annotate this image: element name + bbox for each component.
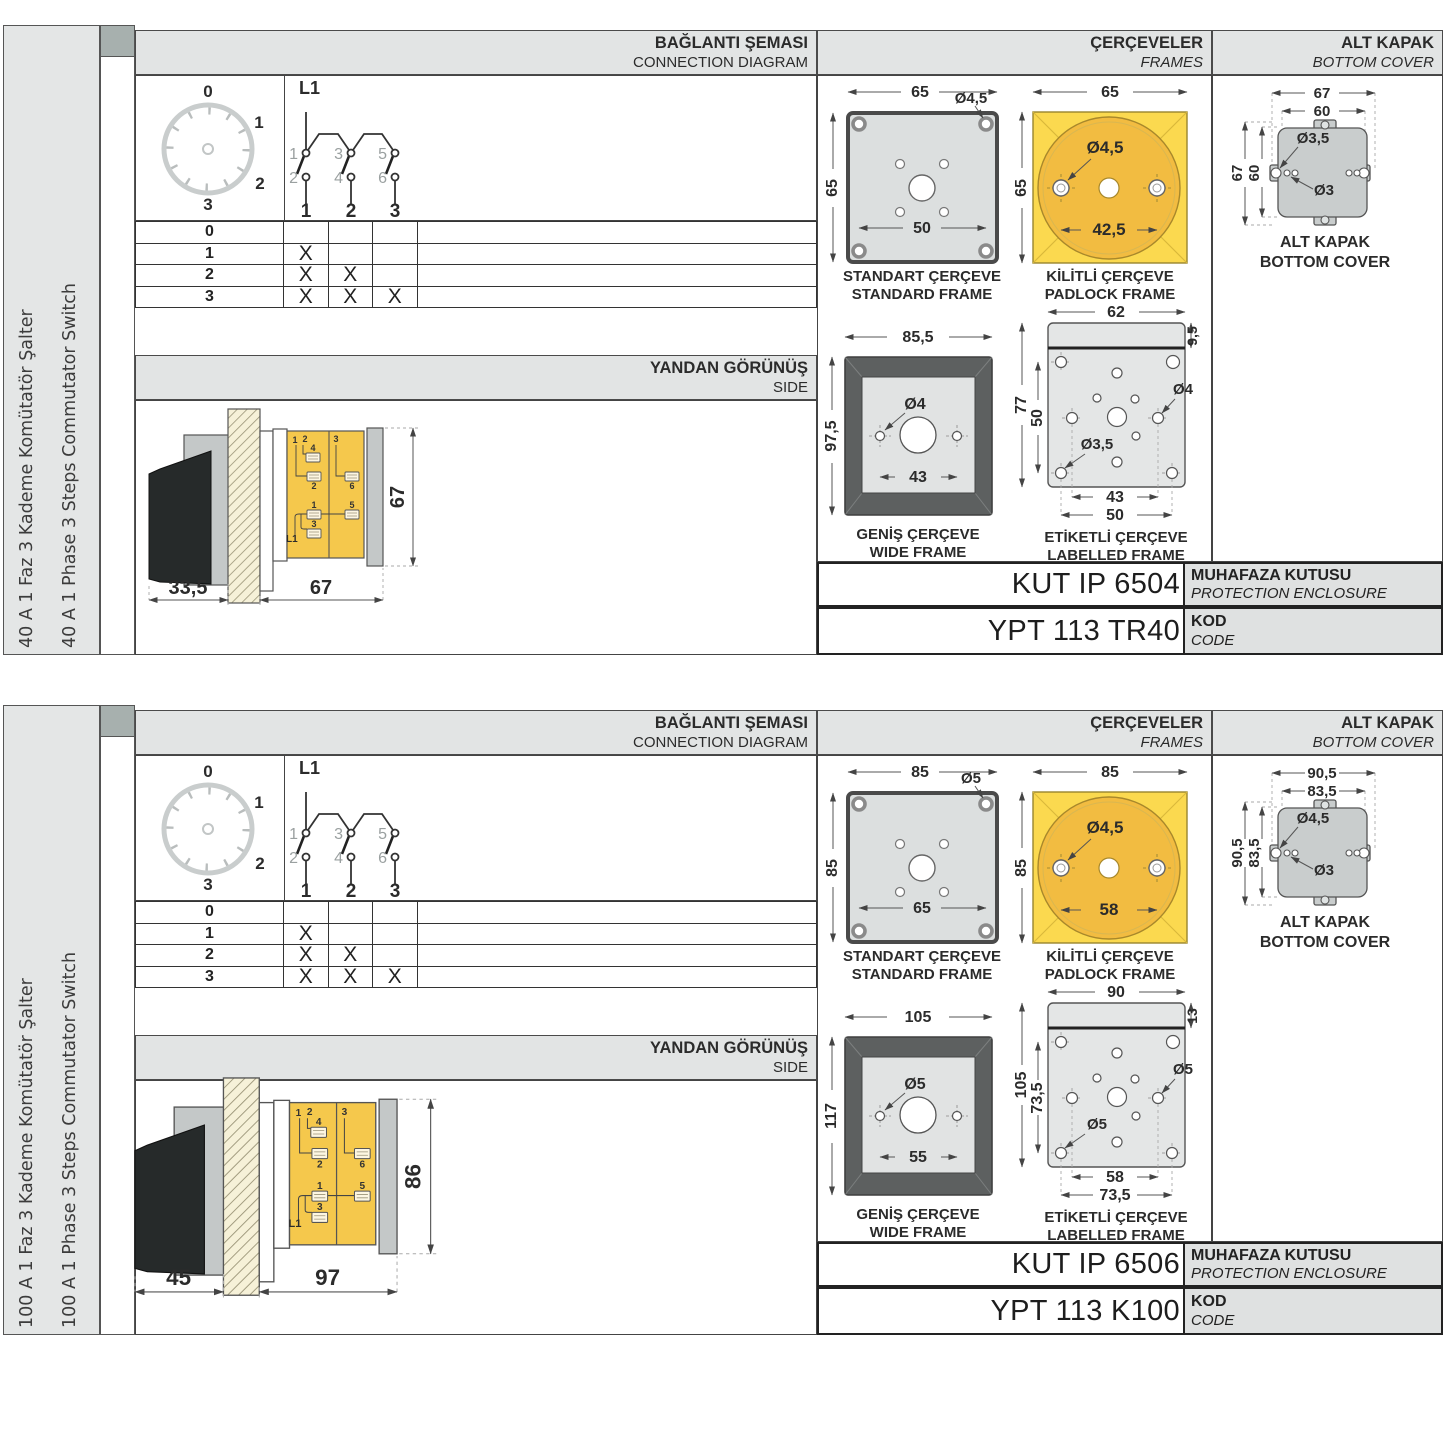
product-panel: 100 A 1 Faz 3 Kademe Komütatör Şalter 10… (0, 705, 1445, 1337)
mark-cell (329, 902, 374, 923)
mark-cell: X (284, 244, 329, 265)
enclosure-row: KUT IP 6504 MUHAFAZA KUTUSU PROTECTION E… (817, 562, 1443, 607)
mark-cell: X (284, 924, 329, 945)
table-row: 2 X X (135, 264, 817, 287)
wide-height-dim: 117 (823, 1103, 840, 1129)
header-connection-diagram: BAĞLANTI ŞEMASI CONNECTION DIAGRAM (135, 710, 817, 755)
sv-term-1b: 1 (311, 500, 316, 510)
cover-h1-dim: 90,5 (1229, 838, 1246, 867)
row-label: 1 (136, 244, 284, 265)
corner-marker (100, 705, 135, 737)
product-title-en: 100 A 1 Phase 3 Steps Commutator Switch (60, 952, 80, 1328)
terminal-1: 1 (289, 826, 298, 843)
enclosure-row: KUT IP 6506 MUHAFAZA KUTUSU PROTECTION E… (817, 1242, 1443, 1287)
table-row: 1 X (135, 243, 817, 266)
code-row: YPT 113 K100 KOD CODE (817, 1287, 1443, 1335)
mark-cell (329, 924, 374, 945)
circuit-diagram: L1 1 2 3 4 5 6 1 2 3 (285, 756, 816, 900)
mark-cell: X (373, 967, 418, 988)
enclosure-label-en: PROTECTION ENCLOSURE (1191, 1265, 1435, 1283)
empty-cell (418, 222, 817, 243)
code-label-en: CODE (1191, 632, 1435, 650)
product-title-en: 40 A 1 Phase 3 Steps Commutator Switch (60, 283, 80, 648)
std-pitch-dim: 65 (913, 900, 931, 917)
sv-height-dim: 86 (401, 1164, 426, 1189)
wide-caption-tr: GENİŞ ÇERÇEVE (856, 1206, 979, 1223)
wide-width-dim: 85,5 (902, 329, 933, 346)
header-connection-en: CONNECTION DIAGRAM (633, 54, 808, 72)
table-row: 0 (135, 901, 817, 924)
connection-diagram-box: 0 1 2 3 L1 (135, 755, 817, 901)
row-label: 0 (136, 902, 284, 923)
side-view-box: 1 2 4 2 3 6 1 5 3 L1 67 33,5 67 (135, 400, 817, 655)
lab-hole-big-dim: Ø4 (1173, 381, 1194, 398)
cover-h1-dim: 67 (1229, 165, 1246, 182)
header-cover-tr: ALT KAPAK (1341, 33, 1434, 54)
wide-width-dim: 105 (905, 1009, 932, 1026)
header-cover-en: BOTTOM COVER (1313, 54, 1434, 72)
cover-hole-small-dim: Ø3 (1314, 862, 1334, 879)
cover-w1-dim: 67 (1314, 85, 1331, 102)
lab-height-dim: 77 (1013, 396, 1030, 414)
empty-cell (418, 244, 817, 265)
wide-hole-dim: Ø5 (904, 1076, 925, 1093)
mark-cell (373, 244, 418, 265)
circuit-cell: L1 1 2 3 4 5 6 1 2 3 (285, 76, 816, 220)
header-frames-tr: ÇERÇEVELER (1090, 33, 1203, 54)
mark-cell: X (329, 967, 374, 988)
dial-pos-3: 3 (203, 875, 212, 894)
pad-pitch-dim: 58 (1100, 900, 1119, 919)
pad-caption-tr: KİLİTLİ ÇERÇEVE (1046, 268, 1174, 285)
terminal-4: 4 (334, 170, 343, 187)
cover-caption-en: BOTTOM COVER (1260, 254, 1391, 271)
spacer-column (100, 25, 135, 655)
lab-caption-tr: ETİKETLİ ÇERÇEVE (1044, 529, 1187, 546)
mark-cell: X (329, 287, 374, 308)
sv-term-1: 1 (292, 435, 297, 445)
sv-term-2b: 2 (311, 481, 316, 491)
sv-term-3b: 3 (317, 1202, 323, 1213)
pad-height-dim: 85 (1013, 859, 1030, 877)
cover-caption-tr: ALT KAPAK (1280, 234, 1371, 251)
terminal-1: 1 (289, 146, 298, 163)
pad-pitch-dim: 42,5 (1092, 220, 1125, 239)
sv-body-depth-dim: 97 (315, 1265, 340, 1290)
table-row: 3 X X X (135, 966, 817, 989)
terminal-5: 5 (378, 826, 387, 843)
standard-frame-drawing: 65 Ø4,5 65 50 STANDART ÇERÇEVE STANDARD … (825, 83, 1015, 333)
cover-h2-dim: 60 (1246, 165, 1263, 182)
lab-pitchv-dim: 50 (1029, 409, 1046, 427)
enclosure-label-en: PROTECTION ENCLOSURE (1191, 585, 1435, 603)
sv-term-4: 4 (310, 443, 315, 453)
pad-hole-dim: Ø4,5 (1087, 138, 1124, 157)
mark-cell (329, 222, 374, 243)
terminal-2: 2 (289, 170, 298, 187)
header-side-view: YANDAN GÖRÜNÜŞ SIDE (135, 355, 817, 400)
lab-pitchh1-dim: 58 (1106, 1169, 1124, 1186)
product-panel: 40 A 1 Faz 3 Kademe Komütatör Şalter 40 … (0, 25, 1445, 657)
mark-cell: X (329, 265, 374, 286)
corner-marker (100, 25, 135, 57)
product-code-value: YPT 113 K100 (817, 1287, 1185, 1335)
std-hole-dim: Ø5 (961, 770, 981, 787)
sv-term-4: 4 (316, 1117, 322, 1128)
sv-term-6: 6 (360, 1160, 366, 1171)
side-view-en: SIDE (773, 1059, 808, 1077)
pole-2: 2 (346, 881, 357, 902)
side-view-drawing: 1 2 4 2 3 6 1 5 3 L1 86 45 97 (136, 1081, 816, 1334)
code-label: KOD CODE (1185, 1287, 1443, 1335)
terminal-6: 6 (378, 170, 387, 187)
enclosure-label: MUHAFAZA KUTUSU PROTECTION ENCLOSURE (1185, 1242, 1443, 1287)
wide-caption-en: WIDE FRAME (870, 1224, 967, 1241)
cover-w2-dim: 60 (1314, 103, 1331, 120)
bottom-cover-drawing: 67 60 67 60 Ø3,5 Ø3 ALT KAPAK BOTTOM CO (1225, 85, 1435, 285)
pole-1: 1 (301, 881, 312, 902)
lab-pitchv-dim: 73,5 (1029, 1082, 1046, 1113)
sv-term-5: 5 (360, 1181, 366, 1192)
sv-front-depth-dim: 45 (166, 1265, 191, 1290)
enclosure-code-value: KUT IP 6506 (817, 1242, 1185, 1287)
header-cover-en: BOTTOM COVER (1313, 734, 1434, 752)
mark-cell (329, 244, 374, 265)
sv-term-1: 1 (296, 1108, 302, 1119)
cover-w2-dim: 83,5 (1307, 783, 1336, 800)
lab-hole-big-dim: Ø5 (1173, 1061, 1193, 1078)
std-caption-tr: STANDART ÇERÇEVE (843, 948, 1001, 965)
feed-label: L1 (299, 78, 320, 98)
header-connection-tr: BAĞLANTI ŞEMASI (655, 713, 808, 734)
mark-cell (284, 222, 329, 243)
empty-cell (418, 924, 817, 945)
mark-cell: X (284, 967, 329, 988)
cover-w1-dim: 90,5 (1307, 765, 1336, 782)
switching-truth-table: 0 1 X 2 X X 3 X X X (135, 221, 817, 308)
std-height-dim: 85 (824, 859, 841, 877)
labelled-frame-drawing: Ø4 Ø3,5 62 9,5 77 50 43 50 ETİKETLİ ÇERÇ… (1015, 300, 1200, 590)
wide-caption-tr: GENİŞ ÇERÇEVE (856, 526, 979, 543)
mark-cell: X (284, 265, 329, 286)
cover-hole-big-dim: Ø3,5 (1297, 130, 1330, 147)
sv-feed-label: L1 (286, 534, 298, 545)
connection-diagram-box: 0 1 2 3 L1 (135, 75, 817, 221)
terminal-3: 3 (334, 146, 343, 163)
sv-front-depth-dim: 33,5 (169, 577, 208, 599)
std-height-dim: 65 (824, 179, 841, 197)
side-view-tr: YANDAN GÖRÜNÜŞ (650, 1038, 808, 1059)
code-row: YPT 113 TR40 KOD CODE (817, 607, 1443, 655)
bottom-cover-drawing: 90,5 83,5 90,5 83,5 Ø4,5 Ø3 ALT KAPAK B (1225, 765, 1435, 965)
mark-cell (373, 265, 418, 286)
lab-pitchh2-dim: 73,5 (1099, 1187, 1130, 1204)
header-cover-tr: ALT KAPAK (1341, 713, 1434, 734)
lab-hole-small-dim: Ø3,5 (1081, 436, 1114, 453)
code-label-en: CODE (1191, 1312, 1435, 1330)
header-frames-en: FRAMES (1140, 54, 1203, 72)
mark-cell: X (284, 287, 329, 308)
header-side-view: YANDAN GÖRÜNÜŞ SIDE (135, 1035, 817, 1080)
dial-cell: 0 1 2 3 (136, 756, 285, 900)
side-view-drawing: 1 2 4 2 3 6 1 5 3 L1 67 33,5 67 (136, 401, 816, 654)
product-title-tr: 100 A 1 Faz 3 Kademe Komütatör Şalter (17, 978, 37, 1328)
terminal-4: 4 (334, 850, 343, 867)
std-pitch-dim: 50 (913, 220, 931, 237)
mark-cell (373, 924, 418, 945)
header-frames-en: FRAMES (1140, 734, 1203, 752)
mark-cell (284, 902, 329, 923)
header-frames: ÇERÇEVELER FRAMES (817, 710, 1212, 755)
wide-frame-drawing: Ø4 43 85,5 97,5 GENİŞ ÇERÇEVE WIDE FRAME (825, 325, 1015, 585)
std-width-dim: 65 (911, 84, 929, 101)
std-caption-en: STANDARD FRAME (852, 286, 993, 303)
empty-cell (418, 945, 817, 966)
dial-pos-1: 1 (254, 793, 263, 812)
terminal-3: 3 (334, 826, 343, 843)
cover-hole-big-dim: Ø4,5 (1297, 810, 1330, 827)
pole-3: 3 (390, 881, 401, 902)
header-connection-diagram: BAĞLANTI ŞEMASI CONNECTION DIAGRAM (135, 30, 817, 75)
mark-cell: X (284, 945, 329, 966)
sv-term-2: 2 (302, 434, 307, 444)
header-connection-en: CONNECTION DIAGRAM (633, 734, 808, 752)
mark-cell: X (373, 287, 418, 308)
code-label-tr: KOD (1191, 612, 1435, 631)
sv-term-3: 3 (333, 434, 338, 444)
table-row: 2 X X (135, 944, 817, 967)
wide-frame-drawing: Ø5 55 105 117 GENİŞ ÇERÇEVE WIDE FRAME (825, 1005, 1015, 1265)
sidebar: 40 A 1 Faz 3 Kademe Komütatör Şalter 40 … (3, 25, 100, 655)
row-label: 0 (136, 222, 284, 243)
cover-h2-dim: 83,5 (1246, 838, 1263, 867)
lab-width-dim: 90 (1107, 984, 1125, 1001)
lab-pitchh1-dim: 43 (1106, 489, 1124, 506)
header-connection-tr: BAĞLANTI ŞEMASI (655, 33, 808, 54)
empty-cell (418, 287, 817, 308)
dial-pos-1: 1 (254, 113, 263, 132)
sv-term-3: 3 (342, 1107, 348, 1118)
lab-height-dim: 105 (1013, 1072, 1030, 1099)
dial-pos-3: 3 (203, 195, 212, 214)
lab-hole-small-dim: Ø5 (1087, 1116, 1107, 1133)
header-frames: ÇERÇEVELER FRAMES (817, 30, 1212, 75)
terminal-2: 2 (289, 850, 298, 867)
mark-cell (373, 902, 418, 923)
lab-strip-dim: 9,5 (1184, 326, 1200, 346)
table-row: 0 (135, 221, 817, 244)
code-label: KOD CODE (1185, 607, 1443, 655)
wide-hole-dim: Ø4 (904, 396, 925, 413)
row-label: 3 (136, 287, 284, 308)
dial-pos-0: 0 (203, 762, 212, 781)
pad-caption-tr: KİLİTLİ ÇERÇEVE (1046, 948, 1174, 965)
std-caption-tr: STANDART ÇERÇEVE (843, 268, 1001, 285)
std-width-dim: 85 (911, 764, 929, 781)
lab-strip-dim: 13 (1184, 1008, 1200, 1024)
empty-cell (418, 902, 817, 923)
header-bottom-cover: ALT KAPAK BOTTOM COVER (1212, 710, 1443, 755)
pad-width-dim: 85 (1101, 764, 1119, 781)
sv-term-1b: 1 (317, 1181, 323, 1192)
side-view-en: SIDE (773, 379, 808, 397)
sv-term-3b: 3 (311, 519, 316, 529)
table-row: 3 X X X (135, 286, 817, 309)
sidebar: 100 A 1 Faz 3 Kademe Komütatör Şalter 10… (3, 705, 100, 1335)
pad-width-dim: 65 (1101, 84, 1119, 101)
standard-frame-drawing: 85 Ø5 85 65 STANDART ÇERÇEVE STANDARD FR… (825, 763, 1015, 1013)
switch-dial-drawing: 0 1 2 3 (136, 76, 285, 220)
sv-term-6: 6 (349, 481, 354, 491)
header-bottom-cover: ALT KAPAK BOTTOM COVER (1212, 30, 1443, 75)
feed-label: L1 (299, 758, 320, 778)
row-label: 2 (136, 265, 284, 286)
wide-pitch-dim: 55 (909, 1149, 927, 1166)
lab-width-dim: 62 (1107, 304, 1125, 321)
pad-height-dim: 65 (1013, 179, 1030, 197)
terminal-6: 6 (378, 850, 387, 867)
product-code-value: YPT 113 TR40 (817, 607, 1185, 655)
side-view-tr: YANDAN GÖRÜNÜŞ (650, 358, 808, 379)
code-label-tr: KOD (1191, 1292, 1435, 1311)
dial-cell: 0 1 2 3 (136, 76, 285, 220)
switch-dial-drawing: 0 1 2 3 (136, 756, 285, 900)
empty-cell (418, 265, 817, 286)
pad-hole-dim: Ø4,5 (1087, 818, 1124, 837)
side-view-box: 1 2 4 2 3 6 1 5 3 L1 86 45 97 (135, 1080, 817, 1335)
header-frames-tr: ÇERÇEVELER (1090, 713, 1203, 734)
enclosure-label: MUHAFAZA KUTUSU PROTECTION ENCLOSURE (1185, 562, 1443, 607)
empty-cell (418, 967, 817, 988)
sv-term-5: 5 (349, 500, 354, 510)
std-hole-dim: Ø4,5 (955, 90, 988, 107)
sv-term-2b: 2 (317, 1160, 323, 1171)
cover-caption-tr: ALT KAPAK (1280, 914, 1371, 931)
circuit-diagram: L1 1 2 3 4 5 6 1 2 3 (285, 76, 816, 220)
wide-pitch-dim: 43 (909, 469, 927, 486)
labelled-frame-drawing: Ø5 Ø5 90 13 105 73,5 58 73,5 ETİKETLİ ÇE… (1015, 980, 1200, 1270)
mark-cell: X (329, 945, 374, 966)
mark-cell (373, 222, 418, 243)
row-label: 1 (136, 924, 284, 945)
sv-feed-label: L1 (288, 1218, 301, 1230)
circuit-cell: L1 1 2 3 4 5 6 1 2 3 (285, 756, 816, 900)
enclosure-label-tr: MUHAFAZA KUTUSU (1191, 1246, 1435, 1265)
cover-caption-en: BOTTOM COVER (1260, 934, 1391, 951)
wide-caption-en: WIDE FRAME (870, 544, 967, 561)
row-label: 3 (136, 967, 284, 988)
lab-pitchh2-dim: 50 (1106, 507, 1124, 524)
sv-term-2: 2 (307, 1107, 313, 1118)
wide-height-dim: 97,5 (823, 420, 840, 451)
pole-3: 3 (390, 201, 401, 222)
switching-truth-table: 0 1 X 2 X X 3 X X X (135, 901, 817, 988)
padlock-frame-drawing: Ø4,5 42,5 65 65 KİLİTLİ ÇERÇEVE PADLOCK … (1015, 83, 1200, 333)
product-title-tr: 40 A 1 Faz 3 Kademe Komütatör Şalter (17, 309, 37, 648)
dial-pos-0: 0 (203, 82, 212, 101)
mark-cell (373, 945, 418, 966)
enclosure-code-value: KUT IP 6504 (817, 562, 1185, 607)
lab-caption-tr: ETİKETLİ ÇERÇEVE (1044, 1209, 1187, 1226)
padlock-frame-drawing: Ø4,5 58 85 85 KİLİTLİ ÇERÇEVE PADLOCK FR… (1015, 763, 1200, 1013)
sv-height-dim: 67 (387, 486, 409, 508)
enclosure-label-tr: MUHAFAZA KUTUSU (1191, 566, 1435, 585)
cover-hole-small-dim: Ø3 (1314, 182, 1334, 199)
dial-pos-2: 2 (255, 174, 264, 193)
terminal-5: 5 (378, 146, 387, 163)
pole-2: 2 (346, 201, 357, 222)
row-label: 2 (136, 945, 284, 966)
table-row: 1 X (135, 923, 817, 946)
std-caption-en: STANDARD FRAME (852, 966, 993, 983)
sv-body-depth-dim: 67 (310, 577, 332, 599)
pole-1: 1 (301, 201, 312, 222)
spacer-column (100, 705, 135, 1335)
dial-pos-2: 2 (255, 854, 264, 873)
